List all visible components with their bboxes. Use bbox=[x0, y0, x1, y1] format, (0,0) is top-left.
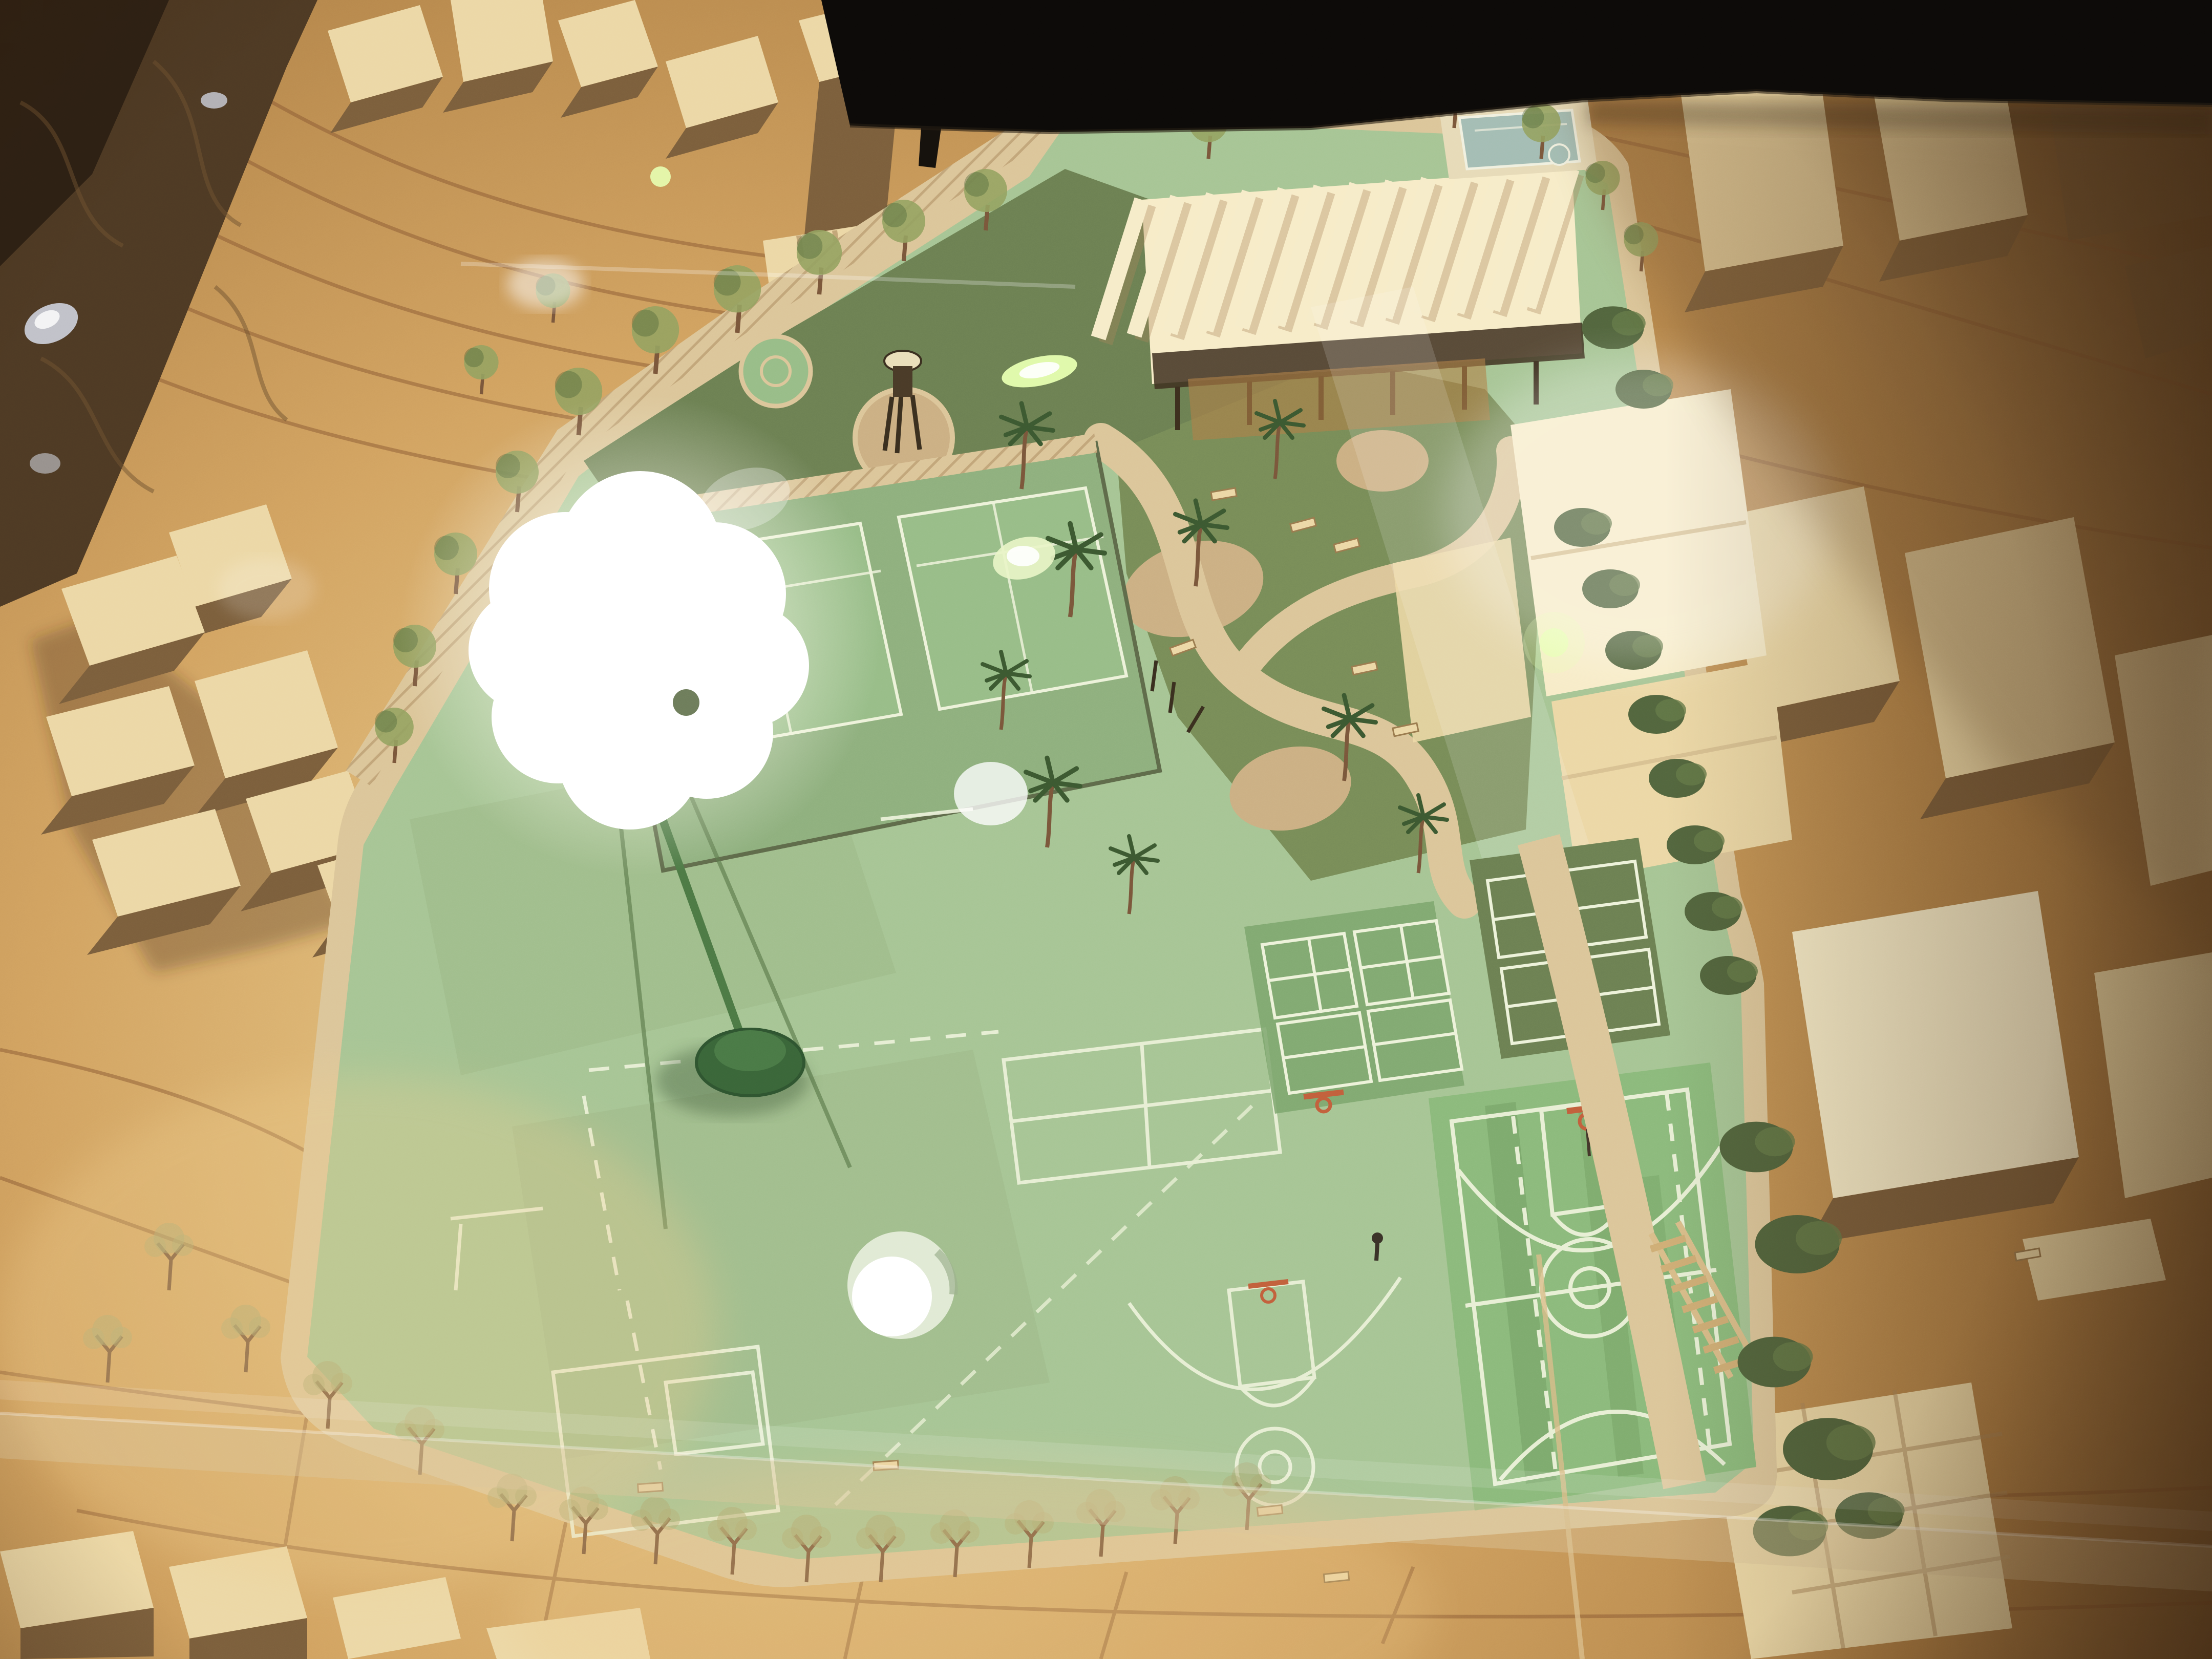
film-grain bbox=[0, 0, 2212, 1659]
architectural-model-photo bbox=[0, 0, 2212, 1659]
scene-canvas bbox=[0, 0, 2212, 1659]
